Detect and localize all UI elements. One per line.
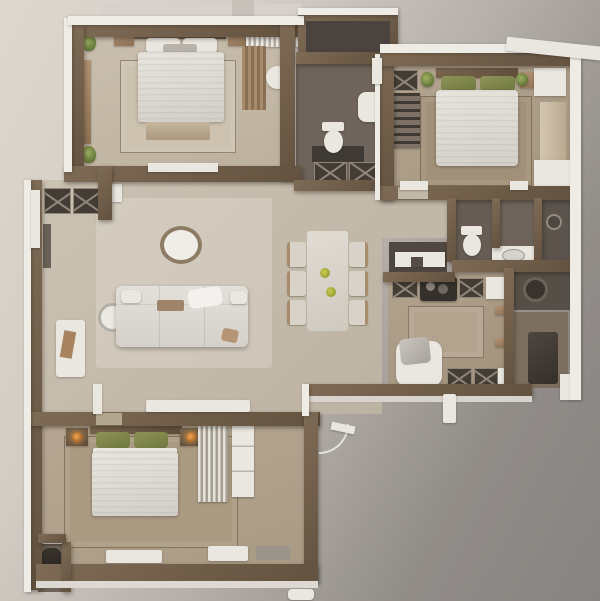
coat-rack [43,224,51,268]
wall-bedroom1-left [72,24,84,170]
bedroom2-plant-1 [421,72,434,87]
bed3-pillow-right [134,432,168,448]
trim-bedroom1-top [68,16,304,25]
bath1-toilet-bowl [324,130,343,153]
dining-chair-left-2 [287,271,306,296]
trim-kitchen-bottom [306,396,532,402]
wall-bath1-bottom [294,180,382,191]
bedroom1-dresser [242,46,266,110]
sofa-pillow-2 [230,291,247,304]
bed2-duvet [436,90,518,166]
dining-chair-right-3 [349,300,368,325]
wall-bedroom3-right [304,412,318,582]
bedroom3-cabinet [232,421,254,497]
wall-kitchen-right [504,268,514,388]
wall-bedroom2-left [380,52,394,200]
bedroom3-door-gap [96,413,122,425]
fridge [528,332,558,384]
coffee-nook-sink [411,257,423,267]
dining-chair-left-3 [287,300,306,325]
wall-bath1-top [296,52,384,64]
bedroom3-bench [106,550,162,563]
tv-bench [146,400,250,412]
wall-nook-bottom [383,272,455,282]
bed3-lamp-right [186,432,196,442]
bath1-cabinet-left [314,162,347,181]
stove-pot-2 [438,284,448,294]
floor-shower [542,198,572,262]
dining-chair-right-2 [349,271,368,296]
wall-hall-wc [447,198,456,262]
ensuite2-door [510,181,528,190]
bedroom2-desk [540,102,566,162]
shoe-cabinet-1 [44,188,71,214]
wall-bedroom1-top [72,24,302,37]
bedroom2-plant-2 [516,73,528,86]
sofa-tray [157,300,184,311]
entry-white-box [112,184,122,202]
bedroom3-gray-bench [256,546,290,560]
trim-bedroom1-left [64,18,72,172]
trim-bedroom3-bottom [36,581,318,588]
wall-bedroom3-bottom [36,564,318,582]
armchair-blanket [399,337,432,366]
bedroom1-wall-shelf [84,60,91,144]
wall-wc-bath2 [492,198,500,248]
bedroom3-wardrobe-louver [198,426,228,502]
stove-pot-1 [426,282,435,291]
bed3-lamp-left [72,432,82,442]
kitchen-cabinet-2 [459,278,484,298]
round-coffee-table [160,226,202,264]
bed1-duvet [138,52,224,122]
bedroom2-door [400,181,428,190]
sofa-pillow-1 [121,290,141,303]
bedroom2-cabinet [390,70,418,91]
bedroom1-sliding-door [148,163,218,172]
exterior-pillar [443,394,456,423]
dining-table [307,231,348,331]
bedroom1-plant-2 [82,146,96,163]
trim-corner-east [302,384,309,416]
wall-entry-stub [98,166,112,220]
wc-toilet-bowl [463,234,481,256]
trim-right-outer [570,52,581,400]
bed3-pillow-left [96,432,130,448]
bedroom2-ladder-shelf [392,93,420,148]
trim-left-main [24,180,31,592]
table-plant-1 [320,268,330,278]
wall-bedroom1-right [280,20,295,180]
washing-machine [523,277,548,302]
wall-bath2-shower [534,198,542,264]
trim-recess-top [298,8,398,15]
bed2-pillow-left [441,76,476,91]
wall-ensuite-top [38,534,66,543]
bed1-foot-bench [146,122,210,140]
bed2-pillow-right [480,76,515,91]
dining-chair-left-1 [287,242,306,267]
entry-door [31,190,40,248]
bath1-door [372,58,382,84]
bedroom2-cabinet-top [534,68,566,96]
shower-head [546,214,562,230]
exterior-white-object [288,589,314,600]
dining-chair-right-1 [349,242,368,267]
bedroom3-desk [208,546,248,561]
shoe-cabinet-2 [73,188,99,214]
table-plant-2 [326,287,336,297]
floor-plan-image: 3D rendered top-down floor plan of a thr… [0,0,600,601]
bed3-duvet [92,452,178,516]
kitchen-dishwasher [486,277,504,299]
bedroom3-door [93,384,102,414]
wall-bedroom3-top [30,412,320,426]
